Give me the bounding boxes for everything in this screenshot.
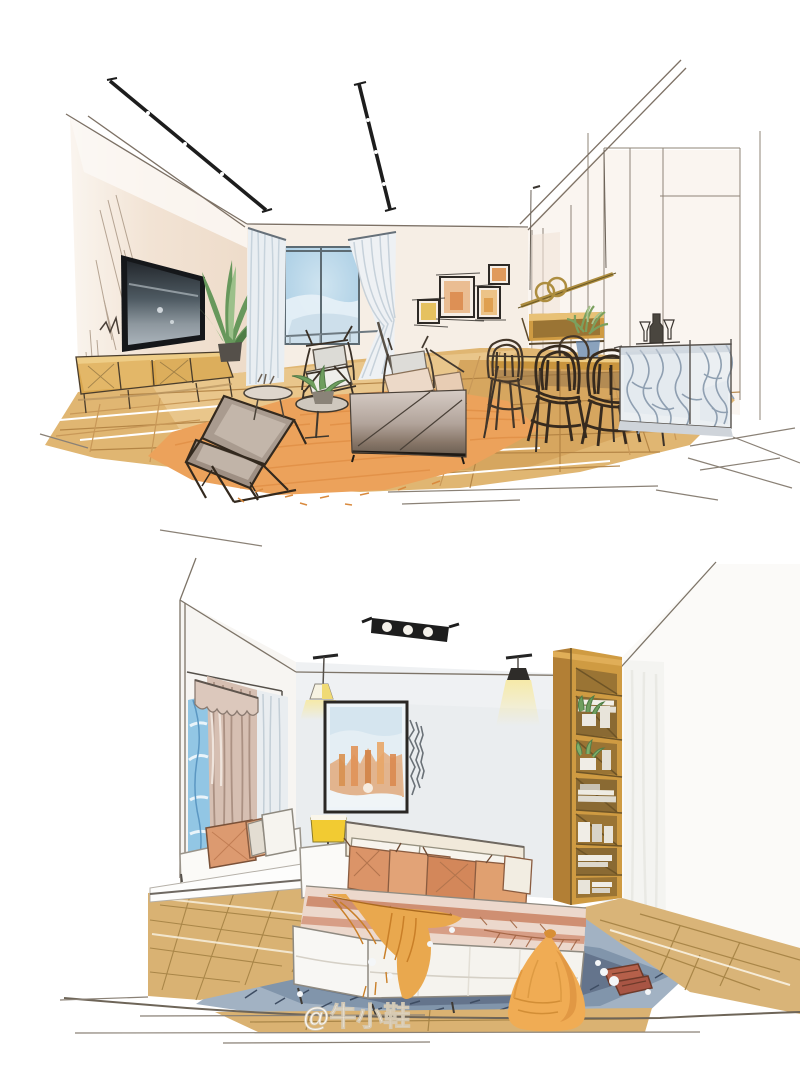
svg-text:@牛小鞋: @牛小鞋: [303, 1002, 410, 1032]
